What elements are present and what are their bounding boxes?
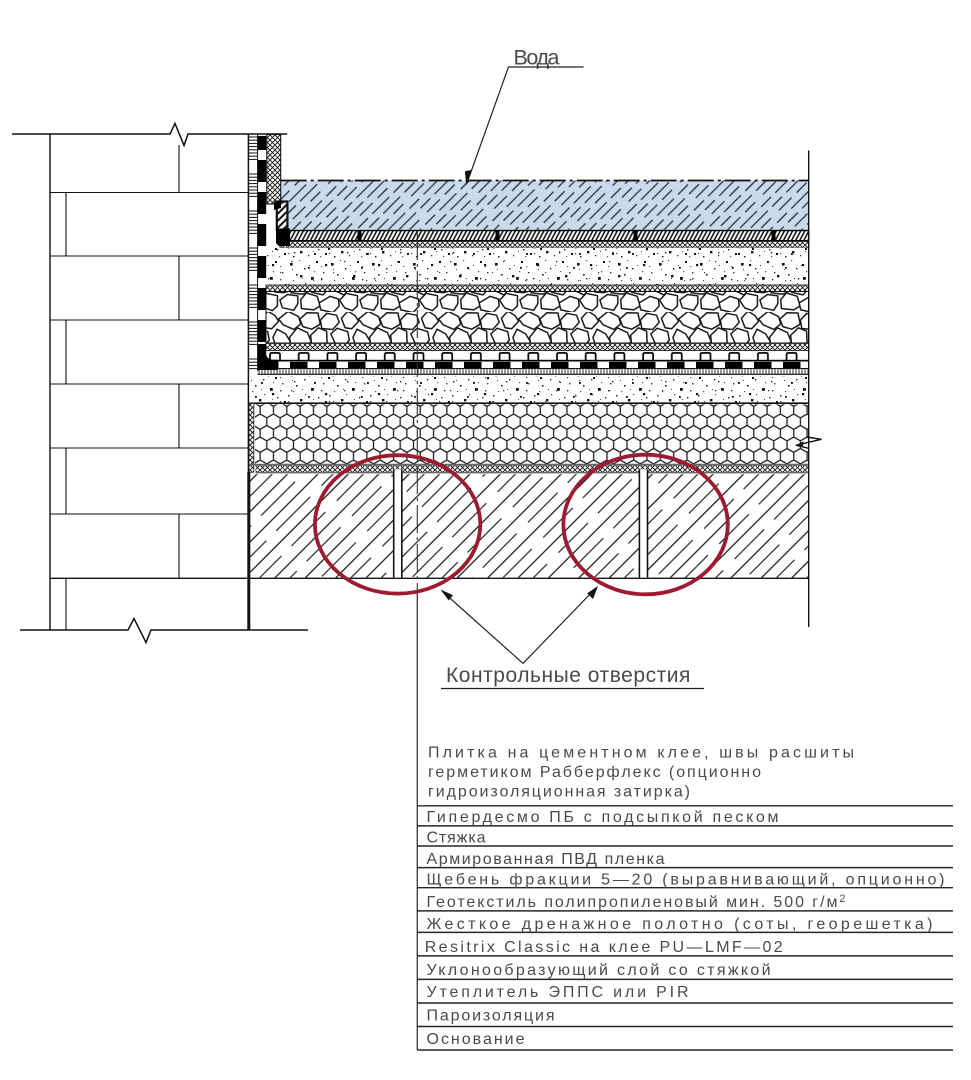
svg-text:Геотекстиль полипропиленовый м: Геотекстиль полипропиленовый мин. 500 г/… [427, 893, 846, 911]
svg-text:Уклонообразующий слой со стяжк: Уклонообразующий слой со стяжкой [427, 962, 771, 979]
svg-text:Стяжка: Стяжка [427, 830, 486, 847]
svg-text:Основание: Основание [427, 1031, 525, 1048]
svg-text:Утеплитель ЭППС или PIR: Утеплитель ЭППС или PIR [427, 984, 689, 1001]
svg-text:Пароизоляция: Пароизоляция [427, 1008, 555, 1025]
svg-text:Армированная ПВД пленка: Армированная ПВД пленка [427, 851, 665, 868]
svg-text:Жесткое дренажное полотно (сот: Жесткое дренажное полотно (соты, геореше… [427, 916, 933, 933]
svg-text:Контрольные отверстия: Контрольные отверстия [446, 664, 692, 687]
svg-text:Щебень фракции 5—20 (выравнива: Щебень фракции 5—20 (выравнивающий, опци… [427, 872, 945, 889]
svg-text:Плитка на цементном клее, швы: Плитка на цементном клее, швы расшиты [428, 745, 854, 762]
svg-text:Вода: Вода [514, 46, 560, 70]
svg-text:герметиком Рабберфлекс (опцион: герметиком Рабберфлекс (опционно [428, 764, 761, 781]
svg-text:Resitrix Classic на клее PU—LM: Resitrix Classic на клее PU—LMF—02 [425, 939, 783, 956]
svg-text:Гипердесмо ПБ с подсыпкой песк: Гипердесмо ПБ с подсыпкой песком [427, 809, 779, 826]
svg-text:гидроизоляционная затирка): гидроизоляционная затирка) [428, 784, 690, 801]
